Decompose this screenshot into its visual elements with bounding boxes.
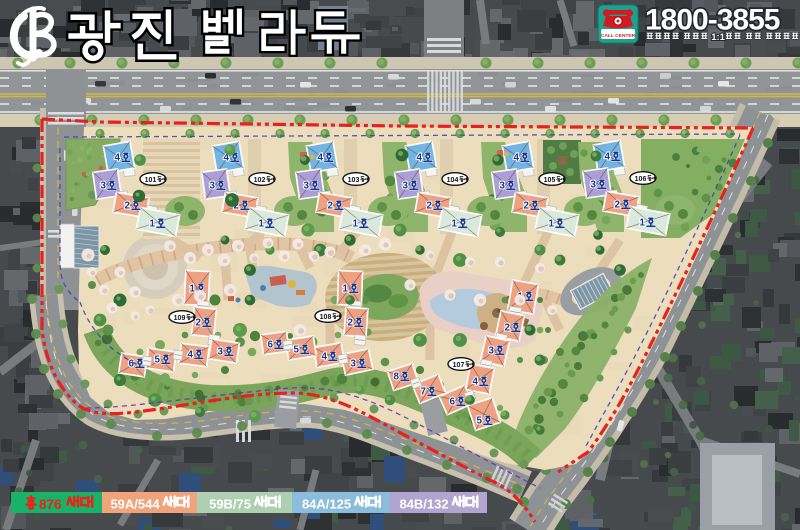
svg-text:84A/125: 84A/125 xyxy=(302,497,351,512)
svg-text:102: 102 xyxy=(254,177,266,184)
svg-text:104: 104 xyxy=(447,177,459,184)
svg-text:101: 101 xyxy=(145,177,157,184)
svg-text:103: 103 xyxy=(348,177,360,184)
svg-text:105: 105 xyxy=(544,177,556,184)
svg-text:59A/544: 59A/544 xyxy=(110,497,160,512)
svg-text:1:1: 1:1 xyxy=(711,32,725,43)
svg-text:876: 876 xyxy=(39,497,62,512)
svg-text:CALL CENTER: CALL CENTER xyxy=(601,33,636,39)
svg-text:84B/132: 84B/132 xyxy=(399,497,448,512)
svg-text:106: 106 xyxy=(635,176,647,183)
svg-text:59B/75: 59B/75 xyxy=(209,497,251,512)
svg-text:108: 108 xyxy=(320,314,332,321)
svg-text:109: 109 xyxy=(174,315,186,322)
svg-text:107: 107 xyxy=(453,362,465,369)
